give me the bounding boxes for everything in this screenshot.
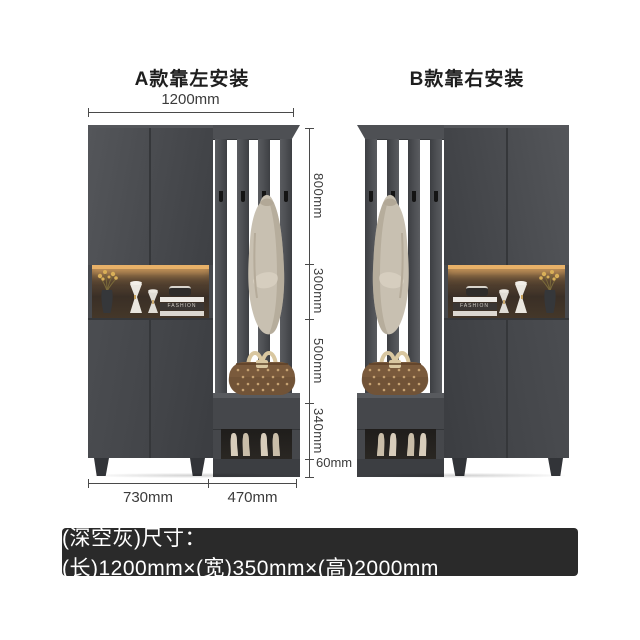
dimension-tick	[305, 477, 314, 478]
book-spine: FASHION	[453, 303, 497, 310]
dimension-tick	[296, 479, 297, 488]
height-segment-label: 500mm	[311, 338, 326, 384]
product-image: A款靠左安装 B款靠右安装 1200mm	[0, 0, 640, 640]
height-segment-label: 340mm	[311, 408, 326, 454]
shoe-compartment	[221, 429, 292, 459]
height-segment-label: 300mm	[311, 268, 326, 314]
top-dimension-line	[88, 112, 293, 113]
lower-doors	[444, 318, 569, 458]
bench-cabinet	[357, 393, 444, 477]
display-shelf: FASHION	[448, 265, 565, 318]
dimension-tick	[293, 108, 294, 117]
dimension-tick	[88, 479, 89, 488]
book-spine-text: FASHION	[168, 303, 197, 309]
books-decor: FASHION	[160, 286, 204, 316]
height-segment-label: 60mm	[316, 455, 352, 470]
bench-drawer	[357, 398, 444, 430]
bottom-width-label-left: 730mm	[88, 489, 208, 506]
floor-shadow	[92, 473, 296, 478]
book-spine-text: FASHION	[461, 303, 490, 310]
shoes-illustration	[369, 432, 433, 458]
cabinet-body: FASHION	[88, 125, 213, 458]
dimension-tick	[305, 459, 314, 460]
book	[160, 297, 204, 302]
books-decor: FASHION	[453, 286, 497, 316]
handbag-illustration	[226, 338, 298, 396]
coat-hook	[219, 191, 223, 202]
door-gap	[88, 318, 213, 320]
vase-and-candleholder-decor	[92, 268, 167, 316]
size-summary-bar: (深空灰)尺寸：(长)1200mm×(宽)350mm×(高)2000mm	[62, 528, 578, 576]
upper-doors	[88, 128, 213, 265]
bottom-dimension-line	[88, 483, 297, 484]
dimension-tick	[305, 319, 314, 320]
dimension-tick	[208, 479, 209, 488]
bottom-width-label-right: 470mm	[208, 489, 297, 506]
door-seam	[149, 318, 151, 458]
handbag-illustration	[359, 338, 431, 396]
door-seam	[506, 318, 508, 458]
cabinet-unit-a: FASHION	[88, 125, 300, 477]
bench-drawer	[213, 398, 300, 430]
dimension-tick	[88, 108, 89, 117]
bench-cabinet	[213, 393, 300, 477]
cabinet-unit-b: FASHION	[357, 125, 569, 477]
coat-rack-top-shelf	[213, 125, 300, 140]
round-box-decor	[169, 286, 191, 296]
vase-and-candleholder-decor	[490, 268, 565, 316]
title-model-a: A款靠左安装	[97, 64, 287, 91]
dimension-tick	[305, 403, 314, 404]
lower-doors	[88, 318, 213, 458]
book-spine: FASHION	[160, 303, 204, 310]
height-dimension-line	[309, 128, 310, 477]
hanging-coat-illustration	[364, 193, 416, 343]
book	[160, 311, 204, 316]
floor-shadow	[361, 473, 565, 478]
door-seam	[149, 128, 151, 265]
dimension-tick	[305, 264, 314, 265]
door-gap	[444, 318, 569, 320]
height-segment-label: 800mm	[311, 173, 326, 219]
round-box-decor	[466, 286, 488, 296]
book	[453, 311, 497, 316]
title-model-b: B款靠右安装	[372, 64, 562, 91]
coat-hook	[434, 191, 438, 202]
shoe-compartment	[365, 429, 436, 459]
size-summary-text: (深空灰)尺寸：(长)1200mm×(宽)350mm×(高)2000mm	[62, 522, 578, 582]
top-width-label: 1200mm	[88, 91, 293, 108]
dimension-tick	[305, 128, 314, 129]
hanging-coat-illustration	[241, 193, 293, 343]
door-seam	[506, 128, 508, 265]
upper-doors	[444, 128, 569, 265]
shoes-illustration	[224, 432, 288, 458]
display-shelf: FASHION	[92, 265, 209, 318]
rack-slat	[430, 139, 442, 393]
book	[453, 297, 497, 302]
cabinet-body: FASHION	[444, 125, 569, 458]
coat-rack-top-shelf	[357, 125, 444, 140]
